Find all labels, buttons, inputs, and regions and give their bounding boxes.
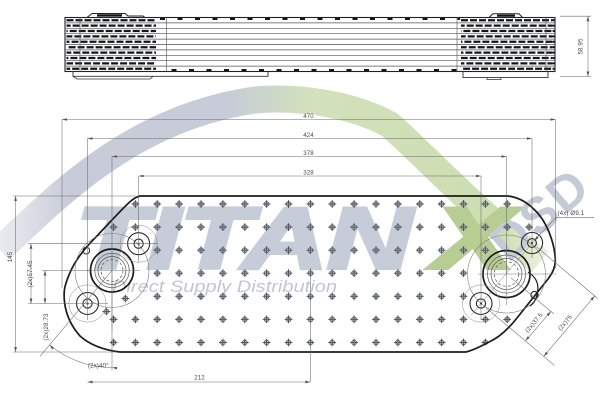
svg-text:424: 424 [303, 132, 314, 139]
svg-text:145: 145 [7, 251, 14, 262]
svg-text:328: 328 [303, 169, 314, 176]
svg-text:(2x)57.45: (2x)57.45 [27, 260, 34, 288]
svg-text:470: 470 [303, 113, 314, 120]
svg-text:(2x)28.73: (2x)28.73 [43, 313, 50, 341]
svg-text:212: 212 [194, 375, 205, 382]
svg-text:(4x) Ø9.1: (4x) Ø9.1 [558, 210, 585, 217]
svg-text:378: 378 [303, 150, 314, 157]
svg-text:58.95: 58.95 [578, 38, 585, 54]
svg-text:(2x)75: (2x)75 [557, 313, 574, 332]
svg-text:Direct Supply Distribution: Direct Supply Distribution [112, 278, 337, 296]
svg-text:(2x)40°: (2x)40° [88, 363, 109, 370]
